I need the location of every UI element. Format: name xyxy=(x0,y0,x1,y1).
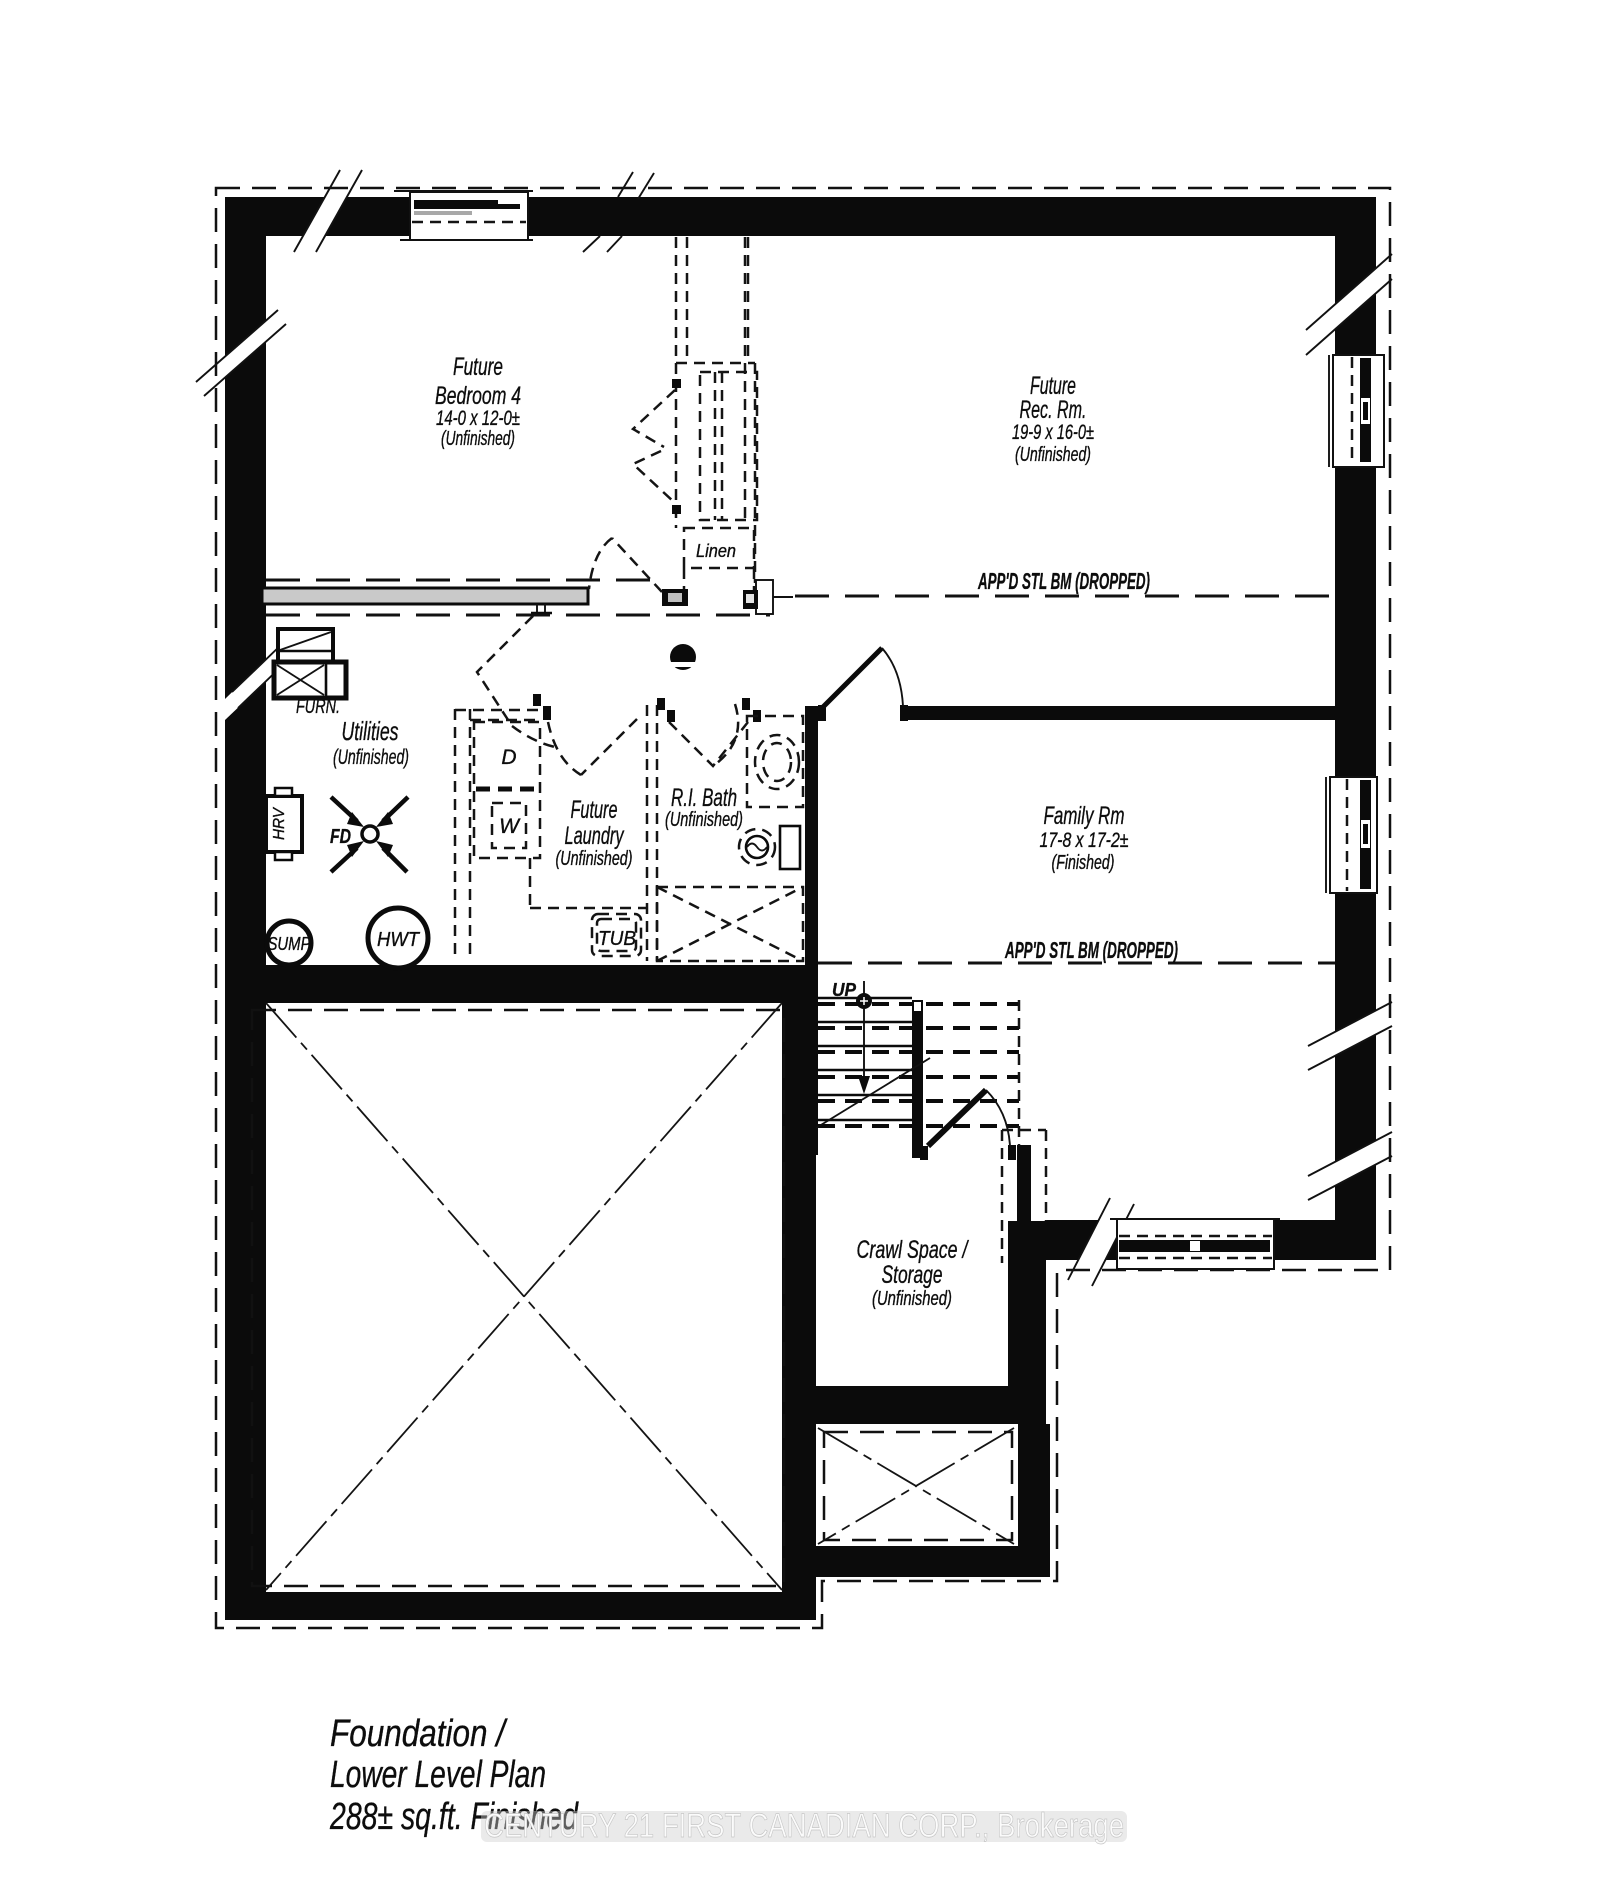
svg-text:Rec. Rm.: Rec. Rm. xyxy=(1020,396,1087,424)
svg-text:Linen: Linen xyxy=(696,541,736,561)
svg-text:APP'D STL BM (DROPPED): APP'D STL BM (DROPPED) xyxy=(1004,937,1178,963)
svg-text:17-8 x 17-2±: 17-8 x 17-2± xyxy=(1040,829,1129,852)
svg-text:Bedroom 4: Bedroom 4 xyxy=(435,382,521,410)
svg-text:(Unfinished): (Unfinished) xyxy=(665,809,743,831)
svg-text:CENTURY 21 FIRST CANADIAN CORP: CENTURY 21 FIRST CANADIAN CORP., Brokera… xyxy=(484,1807,1124,1845)
svg-text:Family Rm: Family Rm xyxy=(1044,802,1125,830)
svg-text:19-9 x 16-0±: 19-9 x 16-0± xyxy=(1012,421,1094,444)
svg-text:(Unfinished): (Unfinished) xyxy=(872,1288,952,1310)
svg-text:(Unfinished): (Unfinished) xyxy=(556,848,633,870)
svg-text:(Unfinished): (Unfinished) xyxy=(441,428,515,450)
svg-text:(Unfinished): (Unfinished) xyxy=(1015,444,1091,466)
svg-text:SUMP: SUMP xyxy=(268,934,311,954)
svg-text:HRV: HRV xyxy=(271,807,288,840)
svg-text:Foundation /: Foundation / xyxy=(330,1713,508,1755)
svg-text:UP: UP xyxy=(832,980,857,1000)
svg-text:Lower Level Plan: Lower Level Plan xyxy=(330,1754,546,1796)
svg-text:Laundry: Laundry xyxy=(565,822,625,850)
svg-text:APP'D STL BM (DROPPED): APP'D STL BM (DROPPED) xyxy=(977,568,1150,594)
svg-text:TUB: TUB xyxy=(598,928,636,950)
svg-text:HWT: HWT xyxy=(377,929,421,951)
svg-text:(Finished): (Finished) xyxy=(1052,852,1115,874)
svg-text:Future: Future xyxy=(453,353,503,381)
svg-text:Crawl Space /: Crawl Space / xyxy=(857,1236,970,1264)
svg-text:(Unfinished): (Unfinished) xyxy=(333,746,409,769)
svg-text:Future: Future xyxy=(571,796,618,824)
svg-text:FD: FD xyxy=(330,826,351,848)
svg-text:R.I. Bath: R.I. Bath xyxy=(671,784,737,812)
svg-text:FURN.: FURN. xyxy=(296,696,340,718)
svg-text:Storage: Storage xyxy=(882,1261,943,1289)
svg-text:14-0 x 12-0±: 14-0 x 12-0± xyxy=(436,407,520,430)
svg-text:Utilities: Utilities xyxy=(342,716,399,746)
svg-text:W: W xyxy=(499,815,521,838)
svg-text:D: D xyxy=(501,746,516,769)
